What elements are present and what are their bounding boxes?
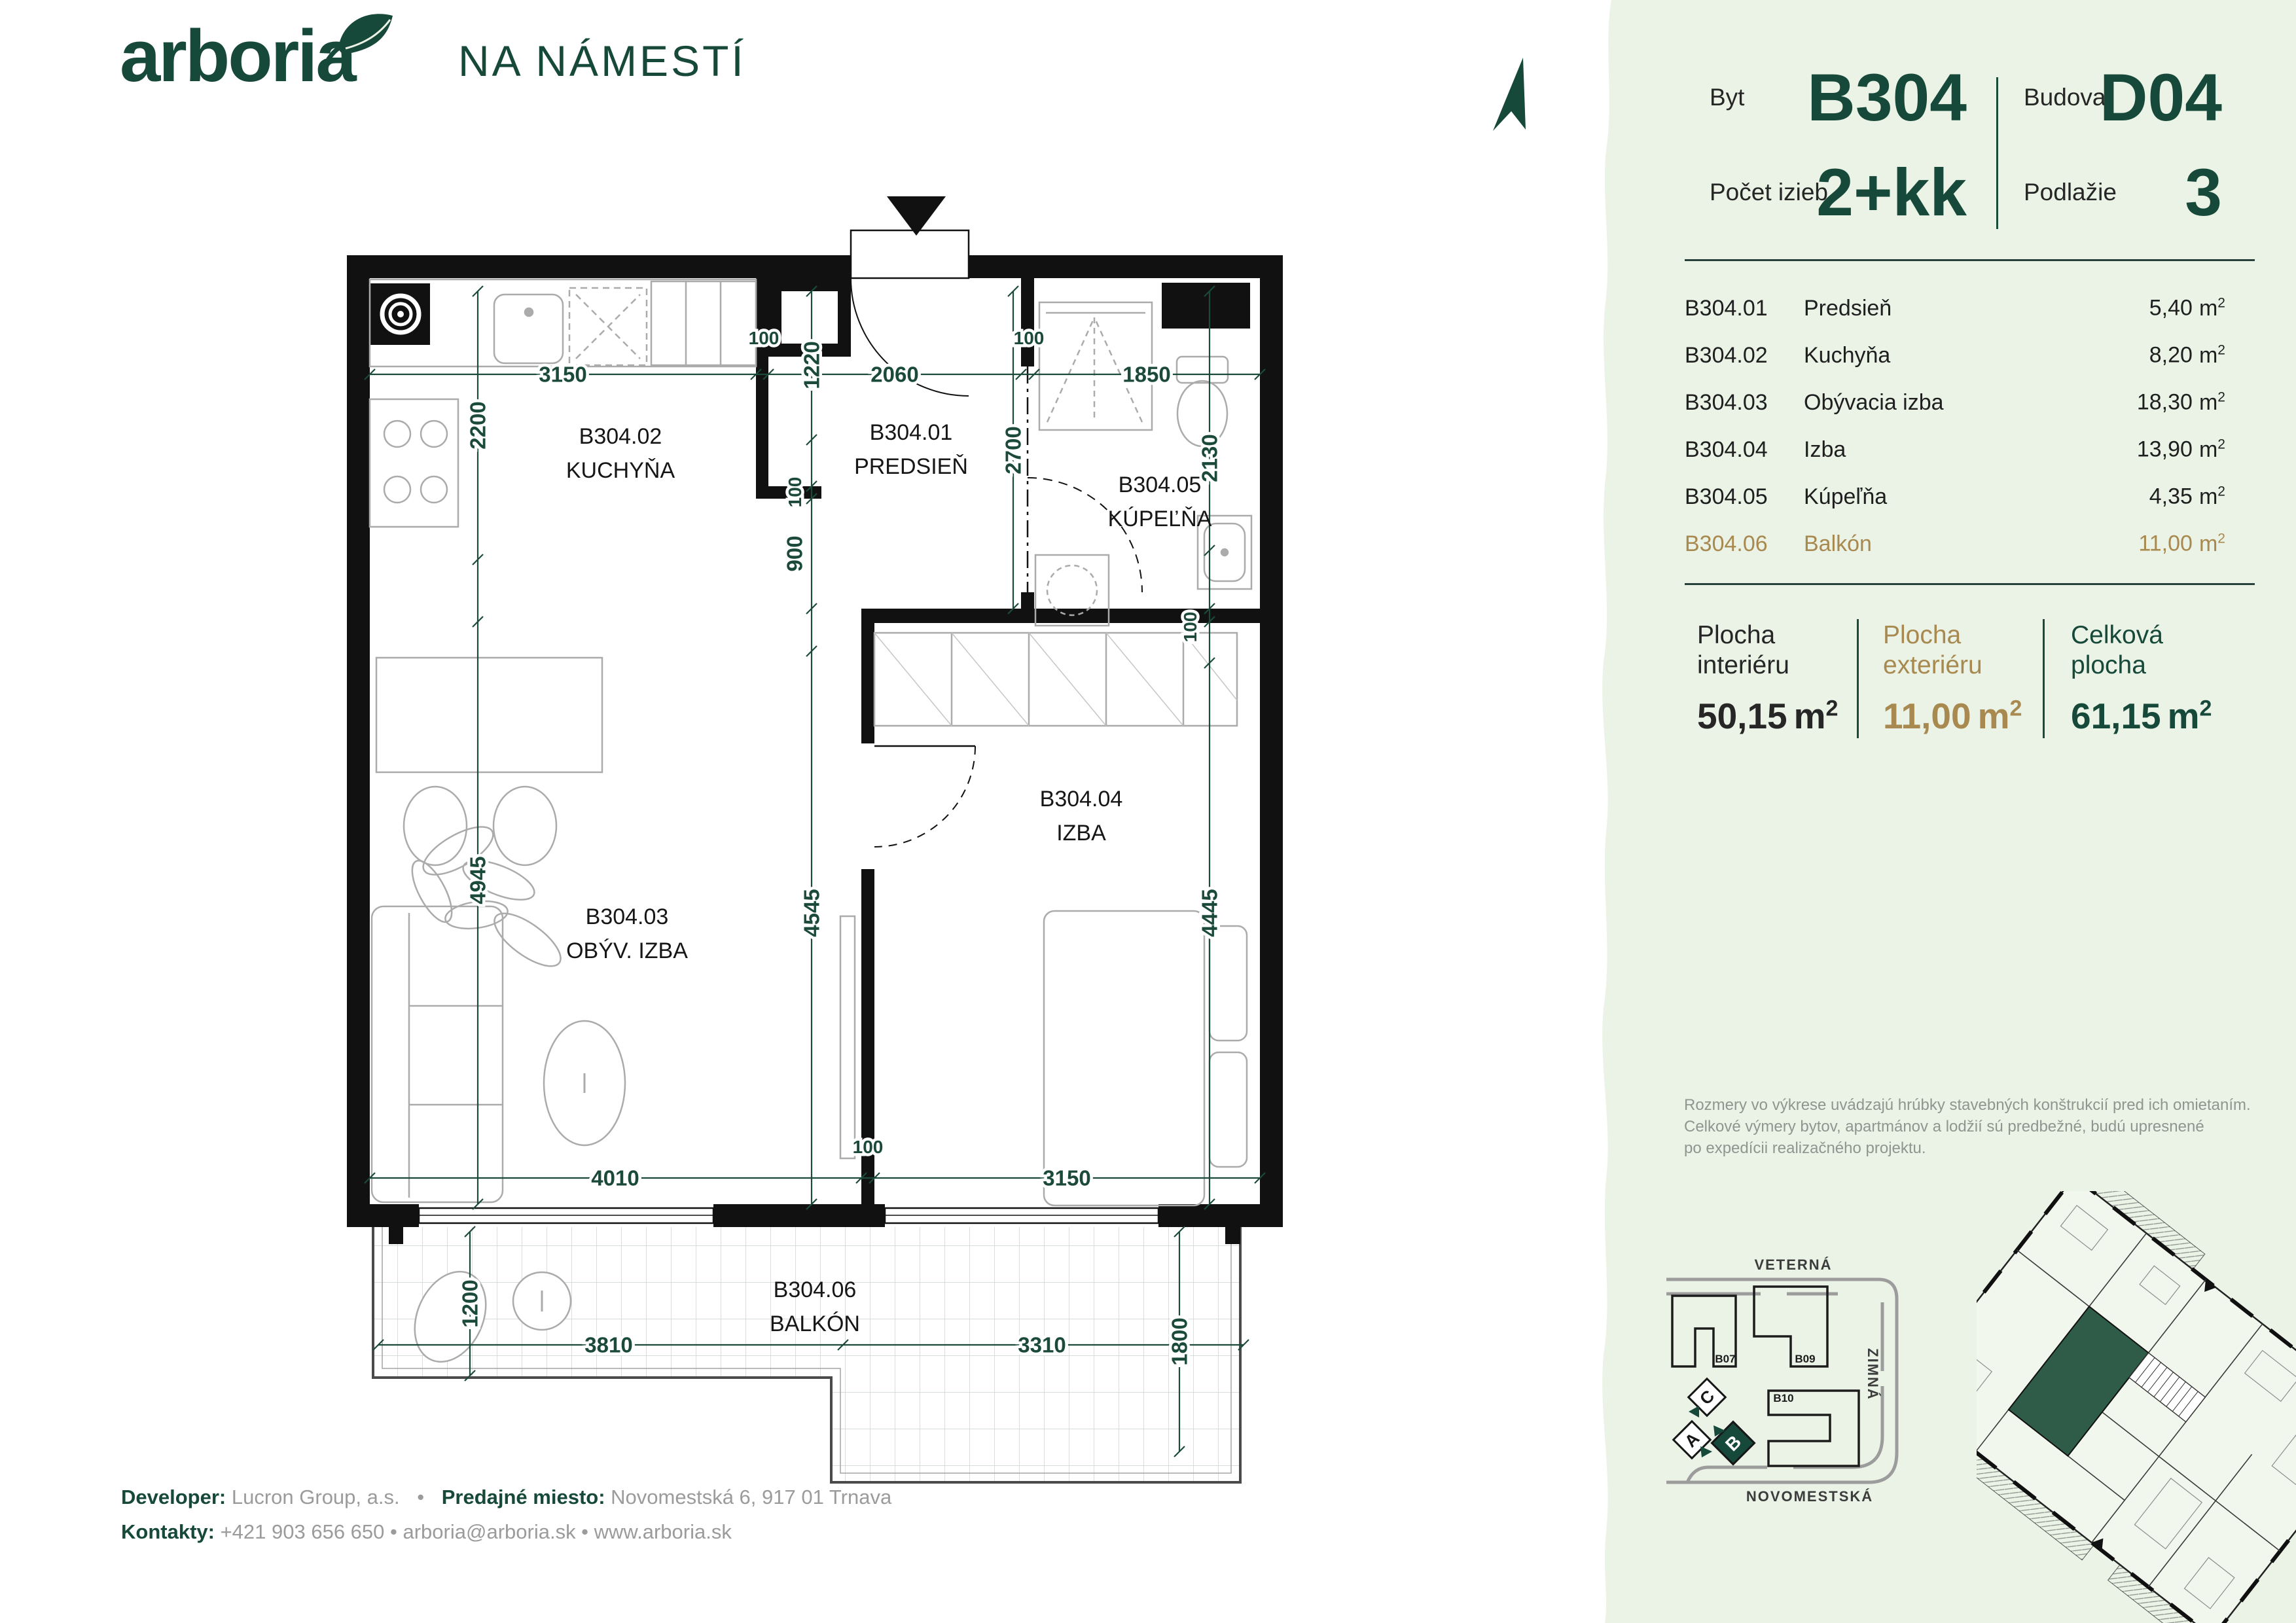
contacts-label: Kontakty: [121,1520,215,1543]
footer-line-1: Developer: Lucron Group, a.s. • Predajné… [121,1486,891,1509]
floorplan-sheet: arboria NA NÁMESTÍ [0,0,2296,1623]
svg-text:4945: 4945 [466,856,490,904]
svg-text:100: 100 [853,1137,884,1157]
summary-divider [2043,619,2045,738]
leaf-icon [322,9,407,68]
sofa [372,906,503,1202]
table-row-highlighted: B304.06 Balkón 11,00m2 [1685,529,2225,559]
developer-label: Developer: [121,1486,226,1508]
svg-text:B07: B07 [1715,1353,1735,1365]
svg-text:2700: 2700 [1001,426,1026,474]
svg-text:4545: 4545 [800,889,824,936]
interior-area-label: Plocha interiéru [1697,620,1789,681]
street-zimna: ZIMNÁ [1865,1348,1881,1400]
svg-text:KUCHYŇA: KUCHYŇA [566,458,675,483]
chair [404,787,467,865]
separator: • [417,1486,424,1508]
svg-text:B09: B09 [1795,1353,1815,1365]
floor-plate-overview [1977,1191,2296,1623]
doors [851,230,1142,847]
torn-edge [1579,0,1615,1623]
svg-text:BALKÓN: BALKÓN [770,1311,860,1336]
toilet [1177,357,1228,383]
streets [1666,1279,1897,1482]
interior-area-value: 50,15m2 [1697,695,1839,737]
svg-text:3810: 3810 [584,1333,632,1357]
balcony-deck [373,1227,1240,1482]
shaft-symbol [370,283,430,345]
svg-text:PREDSIEŇ: PREDSIEŇ [854,454,968,479]
svg-text:1800: 1800 [1168,1317,1192,1365]
svg-text:B304.01: B304.01 [870,420,953,445]
svg-text:KÚPEĽŇA: KÚPEĽŇA [1108,507,1212,531]
exterior-area-value: 11,00m2 [1883,695,2022,737]
contacts-value: +421 903 656 650 • arboria@arboria.sk • … [221,1520,732,1543]
svg-text:900: 900 [783,535,807,571]
podlazie-value: 3 [2055,159,2222,226]
sales-office-label: Predajné miesto: [442,1486,605,1508]
svg-text:100: 100 [785,477,805,508]
total-area-label: Celková plocha [2071,620,2163,681]
svg-text:B304.06: B304.06 [774,1277,857,1302]
svg-text:100: 100 [749,328,780,348]
svg-text:100: 100 [1014,328,1045,348]
room-labels: B304.02 KUCHYŇA B304.01 PREDSIEŇ B304.05… [566,420,1212,1336]
pillow [1210,926,1247,1041]
byt-value: B304 [1741,64,1967,131]
byt-label: Byt [1710,84,1744,111]
site-map: B07 B09 B10 VETERNÁ ZIMNÁ NOVOMESTSKÁ C … [1662,1237,1937,1518]
table-row: B304.03 Obývacia izba 18,30m2 [1685,387,2225,418]
total-area-value: 61,15m2 [2071,695,2212,737]
hob [370,399,458,527]
budova-value: D04 [2055,64,2222,131]
entrance-door-leaf [851,230,969,278]
svg-text:3150: 3150 [539,363,586,387]
kitchen-island [376,658,602,772]
exterior-area-label: Plocha exteriéru [1883,620,1982,681]
svg-text:2060: 2060 [870,363,918,387]
svg-text:4010: 4010 [591,1166,639,1190]
svg-text:IZBA: IZBA [1056,821,1106,846]
header-divider [1996,77,1998,229]
svg-text:3310: 3310 [1018,1333,1066,1357]
disclaimer-text: Rozmery vo výkrese uvádzajú hrúbky stave… [1684,1094,2251,1159]
svg-text:OBÝV. IZBA: OBÝV. IZBA [566,938,688,963]
brand-wordmark: arboria [120,15,355,97]
street-veterna: VETERNÁ [1754,1257,1832,1273]
block-markers: C A B [1674,1379,1755,1465]
developer-value: Lucron Group, a.s. [232,1486,400,1508]
rule-bottom [1685,583,2255,585]
izby-value: 2+kk [1741,159,1967,226]
plant [486,904,568,975]
table-row: B304.04 Izba 13,90m2 [1685,435,2225,465]
kitchen-sink [494,294,563,363]
street-novomestska: NOVOMESTSKÁ [1746,1488,1873,1505]
table-row: B304.01 Predsieň 5,40m2 [1685,293,2225,323]
pillow [1210,1052,1247,1167]
summary-divider [1857,619,1859,738]
entry-niche [781,291,838,344]
chair [493,787,556,865]
svg-text:4445: 4445 [1198,889,1222,936]
sideboard [840,916,855,1158]
table-row: B304.02 Kuchyňa 8,20m2 [1685,340,2225,370]
rule-top [1685,259,2255,261]
table-row: B304.05 Kúpeľňa 4,35m2 [1685,482,2225,512]
svg-text:B304.04: B304.04 [1040,787,1123,811]
svg-text:1200: 1200 [458,1279,482,1327]
svg-text:2200: 2200 [466,401,490,449]
svg-text:1220: 1220 [800,341,824,389]
north-arrow-icon [1482,52,1541,141]
svg-text:3150: 3150 [1043,1166,1090,1190]
svg-text:100: 100 [1180,612,1200,643]
building-b09 [1754,1287,1827,1366]
project-name: NA NÁMESTÍ [458,39,746,82]
svg-text:B304.02: B304.02 [579,424,662,449]
sales-office-value: Novomestská 6, 917 01 Trnava [611,1486,891,1508]
svg-text:B304.03: B304.03 [586,904,669,929]
brand-logo: arboria [120,20,355,93]
svg-text:B10: B10 [1773,1392,1793,1404]
furniture [370,279,1251,1205]
bed [1044,911,1204,1205]
floor-plan-drawing: 3150 100 2060 100 1850 2200 1220 100 900… [288,164,1342,1512]
svg-text:B304.05: B304.05 [1119,473,1202,497]
footer-line-2: Kontakty: +421 903 656 650 • arboria@arb… [121,1520,732,1544]
svg-text:1850: 1850 [1122,363,1170,387]
